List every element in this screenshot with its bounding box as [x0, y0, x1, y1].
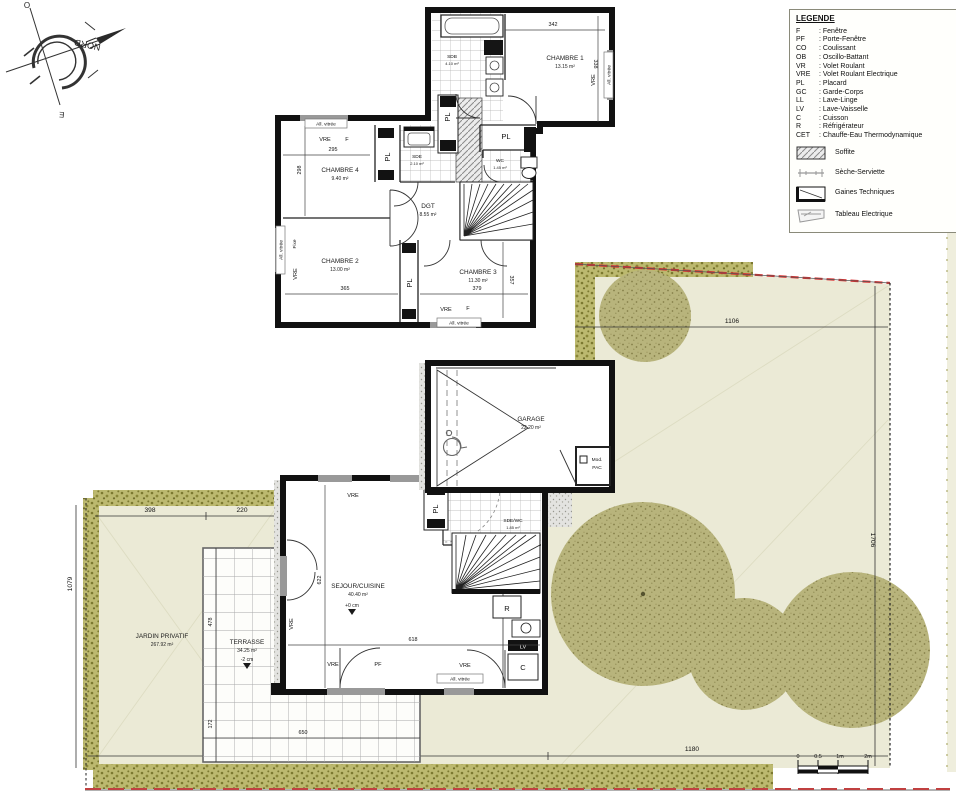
legend-item: R: Réfrigérateur: [796, 123, 951, 132]
legend-symbol-seche-serviette: Sèche-Serviette: [796, 166, 951, 181]
dim-478: 478: [208, 618, 214, 627]
legend-item: LL: Lave-Linge: [796, 97, 951, 106]
dim-1180: 1180: [685, 746, 700, 753]
pl-tag: PL: [501, 132, 510, 141]
soffite-swatch-icon: [796, 146, 826, 160]
garage-area: 22.20 m²: [521, 425, 541, 431]
dim-622: 622: [317, 576, 323, 585]
pf-tag: PF: [374, 662, 382, 668]
allvitree-tag: All. vitrée: [437, 674, 483, 683]
north-arrow-icon: [96, 28, 126, 44]
scale-0: 0: [797, 754, 800, 760]
hedge-right-garden-left-edge: [575, 262, 595, 362]
f-tag: F: [345, 137, 349, 143]
gaines-techniques-swatch-icon: [796, 186, 826, 202]
vre-tag: VRE: [591, 74, 597, 86]
svg-text:All. vitrée: All. vitrée: [449, 321, 469, 327]
compass-west-label: O: [24, 1, 30, 10]
pl-tag: PL: [405, 278, 414, 287]
legend-item: F: Fenêtre: [796, 28, 951, 37]
dim-650: 650: [299, 730, 308, 736]
stairs-upper: [460, 182, 533, 240]
legend-item: C: Cuisson: [796, 115, 951, 124]
allvitree-tag: All. vitrée: [437, 318, 481, 327]
garage-label: GARAGE: [517, 416, 544, 423]
dgt-area: 8.55 m²: [420, 212, 437, 218]
legend-item: LV: Lave-Vaisselle: [796, 106, 951, 115]
upper-floor-plan: CHAMBRE 1 13.15 m² SDB 4.10 m² CHAMBRE 4…: [275, 10, 613, 328]
sdb-label: SDB: [447, 54, 457, 60]
modpac-line1: Mod.: [592, 457, 603, 463]
fridge-label: R: [504, 604, 510, 613]
terrasse-label: TERRASSE: [230, 639, 264, 646]
hedge-bottom: [93, 764, 773, 789]
legend-symbol-soffite: Soffite: [796, 146, 951, 161]
scale-05: 0.5: [814, 754, 822, 760]
pl-tag: PL: [431, 504, 440, 513]
legend-item: PF: Porte-Fenêtre: [796, 36, 951, 45]
wc-area: 1.45 m²: [493, 165, 507, 170]
sdewc-label: SDE/WC: [503, 518, 523, 524]
dim-220: 220: [236, 507, 247, 514]
hedge-left: [83, 498, 99, 770]
legend-symbol-gaines: Gaines Techniques: [796, 186, 951, 202]
legend-title: LEGENDE: [796, 15, 951, 24]
f-tag: F: [466, 306, 470, 312]
dim-338: 338: [592, 60, 598, 69]
pl-tag: PL: [383, 152, 392, 161]
ob-tag: OB: [427, 81, 433, 88]
vre-tag: VRE: [440, 307, 452, 313]
modpac-line2: PAC: [592, 465, 602, 471]
vre-tag: VRE: [327, 662, 339, 668]
dim-298: 298: [297, 166, 303, 175]
svg-text:All. vitrée: All. vitrée: [450, 677, 470, 683]
vre-tag: VRE: [459, 663, 471, 669]
tree: [774, 572, 930, 728]
legend-item: PL: Placard: [796, 80, 951, 89]
legend-item: VR: Volet Roulant: [796, 63, 951, 72]
sde-label: SDE: [412, 154, 422, 160]
dim-295: 295: [329, 147, 338, 153]
lv-label: LV: [520, 645, 527, 651]
scale-2m: 2m: [864, 754, 872, 760]
terrasse-area: 34.25 m²: [237, 648, 257, 654]
soffite-hatch: [456, 98, 482, 182]
dim-1079: 1079: [67, 576, 74, 591]
dim-1106: 1106: [725, 318, 740, 325]
jardin-label: JARDIN PRIVATIF: [136, 633, 189, 640]
vre-tag: VRE: [319, 137, 331, 143]
chambre4-label: CHAMBRE 4: [321, 167, 359, 174]
chambre2-area: 13.00 m²: [330, 267, 350, 273]
allvitree-tag: All. vitrée: [305, 119, 347, 128]
dim-365: 365: [341, 286, 350, 292]
chambre3-label: CHAMBRE 3: [459, 269, 497, 276]
seche-serviette-swatch-icon: [796, 167, 826, 179]
legend-item: CET: Chauffe-Eau Thermodynamique: [796, 132, 951, 141]
compass-east-label: E: [59, 110, 65, 119]
chambre4-area: 9.40 m²: [332, 176, 349, 182]
legend-box: LEGENDE F: Fenêtre PF: Porte-Fenêtre CO:…: [789, 9, 956, 233]
legend-item: VRE: Volet Roulant Electrique: [796, 71, 951, 80]
vre-tag: VRE: [347, 493, 359, 499]
floor-plan-sheet: 1106 1706 398 220 1079 1576 1180 TERRASS…: [0, 0, 956, 800]
legend-symbol-tableau: Tableau Electrique: [796, 207, 951, 225]
compass-rose: NORD O E: [6, 1, 126, 119]
jardin-area: 267.92 m²: [151, 642, 174, 648]
hedge-top-left-garden: [93, 490, 275, 506]
tree: [599, 270, 691, 362]
dgt-label: DGT: [421, 203, 435, 210]
legend-item: CO: Coulissant: [796, 45, 951, 54]
svg-text:All. vitrée: All. vitrée: [279, 240, 285, 260]
sejour-area: 40.40 m²: [348, 592, 368, 598]
vre-tag: VRE: [293, 268, 299, 280]
dim-379: 379: [473, 286, 482, 292]
legend-item: GC: Garde-Corps: [796, 89, 951, 98]
chambre1-area: 13.15 m²: [555, 64, 575, 70]
dim-342: 342: [549, 22, 558, 28]
wc-label: WC: [496, 158, 505, 164]
terrasse-level: -2 cm: [241, 657, 254, 663]
tableau-electrique-swatch-icon: [796, 207, 826, 225]
sde-area: 2.10 m²: [410, 161, 424, 166]
svg-text:All. vitrée: All. vitrée: [607, 65, 613, 85]
dim-357: 357: [508, 276, 514, 285]
sdb-area: 4.10 m²: [445, 61, 459, 66]
legend-item: OB: Oscillo-Battant: [796, 54, 951, 63]
svg-text:All. vitrée: All. vitrée: [316, 122, 336, 128]
dim-172: 172: [208, 720, 214, 729]
dim-618: 618: [409, 637, 418, 643]
sdewc-area: 1.85 m²: [506, 525, 520, 530]
chambre3-area: 11.30 m²: [468, 278, 488, 284]
stairs-ground: [452, 533, 540, 594]
garage: GARAGE 22.20 m² Mod. PAC: [419, 363, 612, 490]
dim-1706: 1706: [869, 533, 876, 548]
pl-tag: PL: [443, 112, 452, 121]
dim-398: 398: [144, 507, 155, 514]
chambre1-label: CHAMBRE 1: [546, 55, 584, 62]
sejour-label: SEJOUR/CUISINE: [331, 583, 385, 590]
chambre2-label: CHAMBRE 2: [321, 258, 359, 265]
vre-tag: VRE: [289, 618, 295, 630]
scale-1m: 1m: [836, 754, 844, 760]
allvitree-tag: All. vitrée: [276, 226, 285, 274]
cuisson-label: C: [520, 663, 526, 672]
allvitree-tag: All. vitrée: [604, 52, 613, 98]
ground-level: +0 cm: [345, 603, 359, 609]
fixe-tag: Fixe: [292, 239, 298, 248]
